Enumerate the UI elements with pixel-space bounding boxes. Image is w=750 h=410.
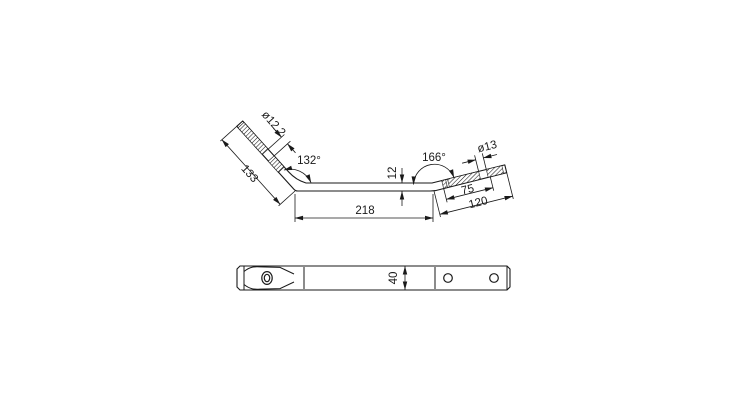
dim-label-dia-right-hole: ø13 <box>476 139 498 155</box>
left-arm-hatch-upper <box>238 122 268 154</box>
dim-label-bar-width: 40 <box>388 272 400 285</box>
dim-label-right-hole-offset: 75 <box>460 183 475 198</box>
dim-middle-length: 218 <box>295 194 433 222</box>
dim-dia-right-hole: ø13 <box>462 139 498 172</box>
dim-label-left-bend-angle: 132° <box>297 155 321 167</box>
dim-label-middle-length: 218 <box>355 205 374 217</box>
dim-label-left-arm-length: 133 <box>238 163 260 185</box>
dim-label-bar-thickness: 12 <box>387 167 399 180</box>
dim-label-dia-left-hole: ø12.2 <box>259 109 288 139</box>
technical-drawing-page: ø12.2 133 132° 12 166° <box>0 0 750 410</box>
plan-view-bar-outline <box>237 266 510 290</box>
bracket-drawing-svg: ø12.2 133 132° 12 166° <box>0 0 750 410</box>
right-arm-hatch-end <box>486 166 503 178</box>
dim-label-right-bend-angle: 166° <box>422 152 446 164</box>
dim-label-right-arm-length: 120 <box>468 195 490 211</box>
side-view: ø12.2 133 132° 12 166° <box>220 109 513 222</box>
plan-view: 40 <box>237 266 510 290</box>
